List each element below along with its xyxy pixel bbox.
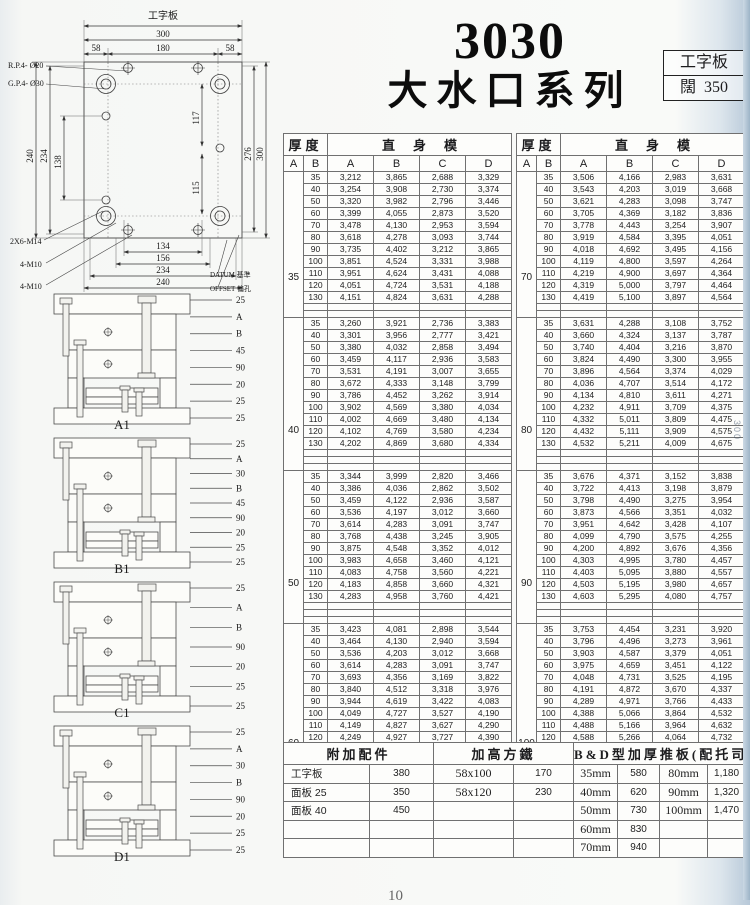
spec-cell: 70 (304, 220, 328, 232)
spec-row: 1204,4325,1113,9094,575 (517, 426, 745, 438)
spec-empty-cell (653, 450, 699, 457)
spec-cell: 4,364 (699, 268, 745, 280)
spec-cell: 3,735 (328, 244, 374, 256)
spec-row: 50353,3443,9992,8203,466 (284, 471, 512, 483)
section-callout: 25 (236, 681, 246, 691)
spec-cell: 3,594 (466, 220, 512, 232)
spec-cell: 3,896 (561, 366, 607, 378)
spec-row: 1204,0514,7243,5314,188 (284, 280, 512, 292)
spec-cell: 3,423 (328, 624, 374, 636)
accessories-table: 附加配件加高方鐵B&D型加厚推板(配托司)工字板38058x10017035mm… (283, 742, 746, 858)
spec-cell: 5,011 (607, 414, 653, 426)
spec-empty-cell (699, 450, 745, 457)
callout-m10-a: 4-M10 (20, 260, 42, 269)
thickness-header: 厚度 (284, 134, 328, 156)
section-callout: 25 (236, 701, 246, 711)
spec-cell: 4,642 (607, 519, 653, 531)
spec-row: 1304,4195,1003,8974,564 (517, 292, 745, 304)
spec-cell: 4,121 (466, 555, 512, 567)
dim-180: 180 (156, 43, 170, 53)
spec-empty-cell (374, 610, 420, 617)
spec-cell: 4,134 (561, 390, 607, 402)
spec-cell: 60 (304, 354, 328, 366)
accessories-cell (660, 839, 708, 858)
spec-cell: 4,197 (374, 507, 420, 519)
spec-cell: 50 (304, 196, 328, 208)
accessories-cell: 面板 25 (284, 783, 370, 802)
spec-cell: 3,525 (653, 672, 699, 684)
section-callout: 45 (236, 346, 246, 356)
spec-cell: 3,254 (653, 220, 699, 232)
spec-table-right-wrap: 厚度直身模ABABCD70353,5064,1662,9833,631403,5… (516, 133, 745, 784)
spec-empty-cell (304, 450, 328, 457)
spec-cell: 4,869 (374, 438, 420, 450)
spec-row: 1003,9024,5693,3804,034 (284, 402, 512, 414)
spec-cell: 2,777 (420, 330, 466, 342)
thickness-header: 厚度 (517, 134, 561, 156)
spec-cell: 3,988 (466, 256, 512, 268)
spec-cell: 4,303 (561, 555, 607, 567)
spec-cell: 3,344 (328, 471, 374, 483)
spec-cell: 4,790 (607, 531, 653, 543)
spec-cell: 3,374 (466, 184, 512, 196)
spec-cell: 3,921 (374, 318, 420, 330)
spec-cell: 3,780 (653, 555, 699, 567)
spec-cell: 3,012 (420, 507, 466, 519)
spec-empty-cell (466, 610, 512, 617)
spec-cell: 4,443 (607, 220, 653, 232)
spec-cell: 4,130 (374, 636, 420, 648)
dim-156: 156 (156, 253, 170, 263)
dim-300: 300 (156, 29, 170, 39)
spec-cell: 4,119 (561, 256, 607, 268)
spec-cell: 4,658 (374, 555, 420, 567)
section-callout: 25 (236, 828, 246, 838)
spec-row: 90353,6764,3713,1523,838 (517, 471, 745, 483)
spec-cell: 100 (537, 708, 561, 720)
spec-cell: 3,019 (653, 184, 699, 196)
spec-cell: 4,971 (607, 696, 653, 708)
spec-row: 603,3994,0552,8733,520 (284, 208, 512, 220)
spec-spacer-row (517, 457, 745, 464)
spec-cell: 4,107 (699, 519, 745, 531)
spec-cell: 3,260 (328, 318, 374, 330)
accessories-cell (434, 820, 514, 839)
spec-cell: 3,914 (466, 390, 512, 402)
spec-cell: 3,797 (653, 280, 699, 292)
spec-row: 1204,1834,8583,6604,321 (284, 579, 512, 591)
spec-cell: 3,822 (466, 672, 512, 684)
spec-empty-cell (466, 304, 512, 311)
accessories-cell (708, 839, 746, 858)
spec-cell: 4,413 (607, 483, 653, 495)
spec-cell: 4,036 (374, 483, 420, 495)
spec-row: 603,7054,3693,1823,836 (517, 208, 745, 220)
spec-cell: 3,531 (420, 280, 466, 292)
spec-cell: 4,319 (561, 280, 607, 292)
section-callout: 30 (236, 469, 246, 479)
spec-row: 403,5434,2033,0193,668 (517, 184, 745, 196)
spec-spacer-row (284, 450, 512, 457)
spec-cell: 4,619 (374, 696, 420, 708)
spec-cell: 2,688 (420, 172, 466, 184)
section-callout: 25 (236, 557, 246, 567)
spec-subheader-row: ABABCD (517, 156, 745, 172)
spec-empty-cell (561, 450, 607, 457)
spec-cell: 4,122 (374, 495, 420, 507)
spec-empty-cell (561, 457, 607, 464)
accessories-cell: 100mm (660, 802, 708, 821)
spec-cell: 2,858 (420, 342, 466, 354)
spec-cell: 3,301 (328, 330, 374, 342)
spec-cell: 4,724 (374, 280, 420, 292)
spec-cell: 40 (537, 184, 561, 196)
section-callout: 90 (236, 794, 246, 804)
spec-cell: 4,083 (466, 696, 512, 708)
accessories-cell: 1,320 (708, 783, 746, 802)
spec-cell: 3,961 (699, 636, 745, 648)
spec-cell: 4,166 (607, 172, 653, 184)
spec-cell: 3,909 (653, 426, 699, 438)
spec-row: 1104,4885,1663,9644,632 (517, 720, 745, 732)
column-header: A (284, 156, 304, 172)
spec-cell: 4,512 (374, 684, 420, 696)
spec-cell: 2,820 (420, 471, 466, 483)
callout-gp: G.P.4- Ø30 (8, 79, 44, 88)
spec-cell: 5,066 (607, 708, 653, 720)
spec-empty-cell (653, 617, 699, 624)
spec-cell: 120 (537, 280, 561, 292)
spec-cell: 4,624 (374, 268, 420, 280)
spec-cell: 4,432 (561, 426, 607, 438)
spec-cell: 4,454 (607, 624, 653, 636)
spec-cell: 35 (537, 318, 561, 330)
accessories-cell: 620 (618, 783, 660, 802)
spec-cell: 3,320 (328, 196, 374, 208)
section-callout: 25 (236, 396, 246, 406)
spec-cell: 3,870 (699, 342, 745, 354)
spec-cell: 4,457 (699, 555, 745, 567)
spec-cell: 3,740 (561, 342, 607, 354)
spec-empty-cell (374, 311, 420, 318)
spec-row: 503,6214,2833,0983,747 (517, 196, 745, 208)
spec-header-row: 厚度直身模 (517, 134, 745, 156)
spec-cell: 60 (304, 507, 328, 519)
dim-234-bottom: 234 (156, 265, 170, 275)
spec-cell: 4,221 (466, 567, 512, 579)
spec-cell: 3,478 (328, 220, 374, 232)
spec-empty-cell (537, 464, 561, 471)
spec-row: 403,2543,9082,7303,374 (284, 184, 512, 196)
spec-spacer-row (517, 464, 745, 471)
spec-cell: 2,796 (420, 196, 466, 208)
spec-cell: 5,095 (607, 567, 653, 579)
spec-cell: 4,191 (374, 366, 420, 378)
spec-cell: 3,460 (420, 555, 466, 567)
accessories-cell: 50mm (574, 802, 618, 821)
spec-cell: 4,490 (607, 354, 653, 366)
accessories-cell: 730 (618, 802, 660, 821)
spec-cell: 4,051 (328, 280, 374, 292)
spec-cell: 4,032 (374, 342, 420, 354)
spec-row: 1304,6035,2954,0804,757 (517, 591, 745, 603)
spec-cell: 60 (537, 507, 561, 519)
spec-cell: 4,190 (466, 708, 512, 720)
spec-cell: 3,660 (420, 579, 466, 591)
spec-row: 100353,7534,4543,2313,920 (517, 624, 745, 636)
spec-cell: 3,380 (420, 402, 466, 414)
spec-cell: 130 (304, 438, 328, 450)
spec-cell: 5,000 (607, 280, 653, 292)
spec-cell: 3,012 (420, 648, 466, 660)
spec-cell: 4,051 (699, 232, 745, 244)
spec-cell: 90 (304, 696, 328, 708)
spec-row: 803,8404,5123,3183,976 (284, 684, 512, 696)
spec-cell: 4,337 (699, 684, 745, 696)
spec-empty-cell (561, 603, 607, 610)
spec-empty-cell (374, 617, 420, 624)
spec-cell: 4,202 (328, 438, 374, 450)
spec-cell: 3,300 (653, 354, 699, 366)
spec-empty-cell (699, 457, 745, 464)
spec-spacer-row (284, 304, 512, 311)
spec-cell: 120 (304, 280, 328, 292)
spec-cell: 3,798 (561, 495, 607, 507)
spec-cell: 4,032 (699, 507, 745, 519)
spec-table-left-wrap: 厚度直身模ABABCD35353,2123,8652,6883,329403,2… (283, 133, 512, 784)
spec-spacer-row (517, 603, 745, 610)
spec-row: 503,9034,5873,3794,051 (517, 648, 745, 660)
edge-vertical-text: 300 (732, 420, 742, 441)
spec-cell: 3,660 (561, 330, 607, 342)
spec-cell: 70 (537, 366, 561, 378)
spec-row: 1304,2024,8693,6804,334 (284, 438, 512, 450)
dim-58-right: 58 (226, 43, 236, 53)
spec-row: 1104,0834,7583,5604,221 (284, 567, 512, 579)
accessories-cell: 70mm (574, 839, 618, 858)
spec-empty-cell (304, 457, 328, 464)
spec-row: 603,4594,1172,9363,583 (284, 354, 512, 366)
spec-row: 1304,1514,8243,6314,288 (284, 292, 512, 304)
spec-cell: 4,080 (653, 591, 699, 603)
spec-cell: 4,707 (607, 378, 653, 390)
spec-cell: 3,621 (561, 196, 607, 208)
spec-cell: 4,321 (466, 579, 512, 591)
column-header: C (653, 156, 699, 172)
spec-cell: 4,692 (607, 244, 653, 256)
dim-234-left: 234 (39, 149, 49, 163)
spec-cell: 4,356 (699, 543, 745, 555)
spec-cell: 2,936 (420, 495, 466, 507)
spec-cell: 2,940 (420, 636, 466, 648)
spec-cell: 3,383 (466, 318, 512, 330)
spec-cell: 3,809 (653, 414, 699, 426)
spec-cell: 3,531 (328, 366, 374, 378)
spec-cell: 3,459 (328, 354, 374, 366)
spec-cell: 3,944 (328, 696, 374, 708)
spec-row: 904,2894,9713,7664,433 (517, 696, 745, 708)
spec-cell: 3,760 (420, 591, 466, 603)
spec-cell: 4,995 (607, 555, 653, 567)
section-callout: B (236, 622, 242, 632)
spec-cell: 4,036 (561, 378, 607, 390)
spec-cell: 35 (537, 471, 561, 483)
accessories-cell (514, 802, 574, 821)
spec-empty-cell (653, 304, 699, 311)
section-label: D1 (114, 849, 130, 864)
spec-cell: 4,029 (699, 366, 745, 378)
section-callout: 25 (236, 295, 246, 305)
accessories-cell (284, 820, 370, 839)
section-callout: 25 (236, 845, 246, 855)
spec-row: 904,0184,6923,4954,156 (517, 244, 745, 256)
spec-cell: 3,148 (420, 378, 466, 390)
spec-row: 1204,3195,0003,7974,464 (517, 280, 745, 292)
spec-cell: 4,156 (699, 244, 745, 256)
spec-cell: 4,264 (699, 256, 745, 268)
spec-cell: 4,603 (561, 591, 607, 603)
spec-empty-cell (607, 311, 653, 318)
spec-row: 904,1344,8103,6114,271 (517, 390, 745, 402)
spec-cell: 80 (304, 684, 328, 696)
spec-cell: 4,102 (328, 426, 374, 438)
spec-cell: 3,709 (653, 402, 699, 414)
spec-cell: 5,195 (607, 579, 653, 591)
spec-cell: 60 (537, 660, 561, 672)
dim-134: 134 (156, 241, 170, 251)
page-number: 10 (388, 888, 403, 905)
accessories-row: 60mm830 (284, 820, 746, 839)
spec-empty-cell (304, 603, 328, 610)
spec-cell: 4,012 (466, 543, 512, 555)
spec-row: 703,9514,6423,4284,107 (517, 519, 745, 531)
spec-cell: 4,548 (374, 543, 420, 555)
column-header: B (537, 156, 561, 172)
spec-empty-cell (420, 311, 466, 318)
spec-empty-cell (328, 603, 374, 610)
section-callout: 25 (236, 542, 246, 552)
spec-cell: 3,093 (420, 232, 466, 244)
spec-cell: 3,395 (653, 232, 699, 244)
accessories-header: 加高方鐵 (434, 743, 574, 765)
spec-cell: 90 (537, 696, 561, 708)
section-label: C1 (114, 705, 129, 720)
spec-cell: 3,908 (374, 184, 420, 196)
accessories-cell: 40mm (574, 783, 618, 802)
spec-cell: 90 (304, 390, 328, 402)
spec-cell: 3,216 (653, 342, 699, 354)
spec-cell: 3,768 (328, 531, 374, 543)
spec-cell: 4,183 (328, 579, 374, 591)
spec-row: 1004,2324,9113,7094,375 (517, 402, 745, 414)
spec-cell: 100 (304, 402, 328, 414)
spec-cell: 70 (304, 672, 328, 684)
spec-empty-cell (699, 464, 745, 471)
spec-empty-cell (699, 617, 745, 624)
spec-empty-cell (374, 457, 420, 464)
spec-cell: 4,858 (374, 579, 420, 591)
spec-cell: 35 (304, 471, 328, 483)
spec-cell: 60 (304, 208, 328, 220)
section-callout: 25 (236, 413, 246, 423)
spec-cell: 110 (537, 720, 561, 732)
accessories-cell: 90mm (660, 783, 708, 802)
spec-row: 1003,9834,6583,4604,121 (284, 555, 512, 567)
spec-cell: 130 (304, 292, 328, 304)
spec-cell: 4,081 (374, 624, 420, 636)
spec-empty-cell (653, 603, 699, 610)
spec-cell: 4,824 (374, 292, 420, 304)
page-title: 3030 大水口系列 (366, 16, 654, 114)
spec-cell: 3,722 (561, 483, 607, 495)
spec-cell: 120 (304, 579, 328, 591)
spec-cell: 80 (537, 684, 561, 696)
spec-row: 804,0364,7073,5144,172 (517, 378, 745, 390)
accessories-cell: 940 (618, 839, 660, 858)
spec-empty-cell (420, 610, 466, 617)
spec-cell: 4,900 (607, 268, 653, 280)
spec-row: 804,0994,7903,5754,255 (517, 531, 745, 543)
spec-cell: 4,130 (374, 220, 420, 232)
spec-cell: 4,034 (466, 402, 512, 414)
spec-row: 35353,2123,8652,6883,329 (284, 172, 512, 184)
dim-138: 138 (53, 155, 63, 169)
spec-cell: 4,002 (328, 414, 374, 426)
spec-cell: 5,295 (607, 591, 653, 603)
spec-table: 厚度直身模ABABCD35353,2123,8652,6883,329403,2… (283, 133, 512, 784)
accessories-cell: 1,180 (708, 765, 746, 784)
spec-cell: 4,356 (374, 672, 420, 684)
spec-empty-cell (466, 457, 512, 464)
spec-cell: 3,976 (466, 684, 512, 696)
spec-cell: 3,983 (328, 555, 374, 567)
spec-empty-cell (328, 311, 374, 318)
spec-cell: 3,451 (653, 660, 699, 672)
spec-cell: 3,670 (653, 684, 699, 696)
spec-cell: 3,506 (561, 172, 607, 184)
spec-empty-cell (304, 304, 328, 311)
spec-cell: 120 (537, 579, 561, 591)
spec-cell: 4,188 (466, 280, 512, 292)
spec-cell: 40 (304, 636, 328, 648)
dim-240-bottom: 240 (156, 277, 170, 287)
spec-empty-cell (420, 464, 466, 471)
spec-cell: 3,631 (561, 318, 607, 330)
spec-row: 704,0484,7313,5254,195 (517, 672, 745, 684)
spec-empty-cell (561, 610, 607, 617)
spec-empty-cell (653, 311, 699, 318)
spec-spacer-row (284, 464, 512, 471)
accessories-cell: 580 (618, 765, 660, 784)
spec-cell: 80 (304, 531, 328, 543)
spec-cell: 4,232 (561, 402, 607, 414)
dim-300-right: 300 (255, 147, 265, 161)
spec-cell: 70 (537, 672, 561, 684)
spec-cell: 3,753 (561, 624, 607, 636)
spec-empty-cell (653, 610, 699, 617)
spec-cell: 4,800 (607, 256, 653, 268)
spec-cell: 110 (304, 720, 328, 732)
spec-cell: 80 (304, 232, 328, 244)
spec-cell: 50 (304, 342, 328, 354)
spec-cell: 3,693 (328, 672, 374, 684)
thickness-a-value: 80 (517, 318, 537, 471)
accessories-cell (434, 802, 514, 821)
spec-cell: 50 (537, 648, 561, 660)
dim-58-left: 58 (92, 43, 102, 53)
column-header: A (517, 156, 537, 172)
spec-cell: 3,668 (699, 184, 745, 196)
